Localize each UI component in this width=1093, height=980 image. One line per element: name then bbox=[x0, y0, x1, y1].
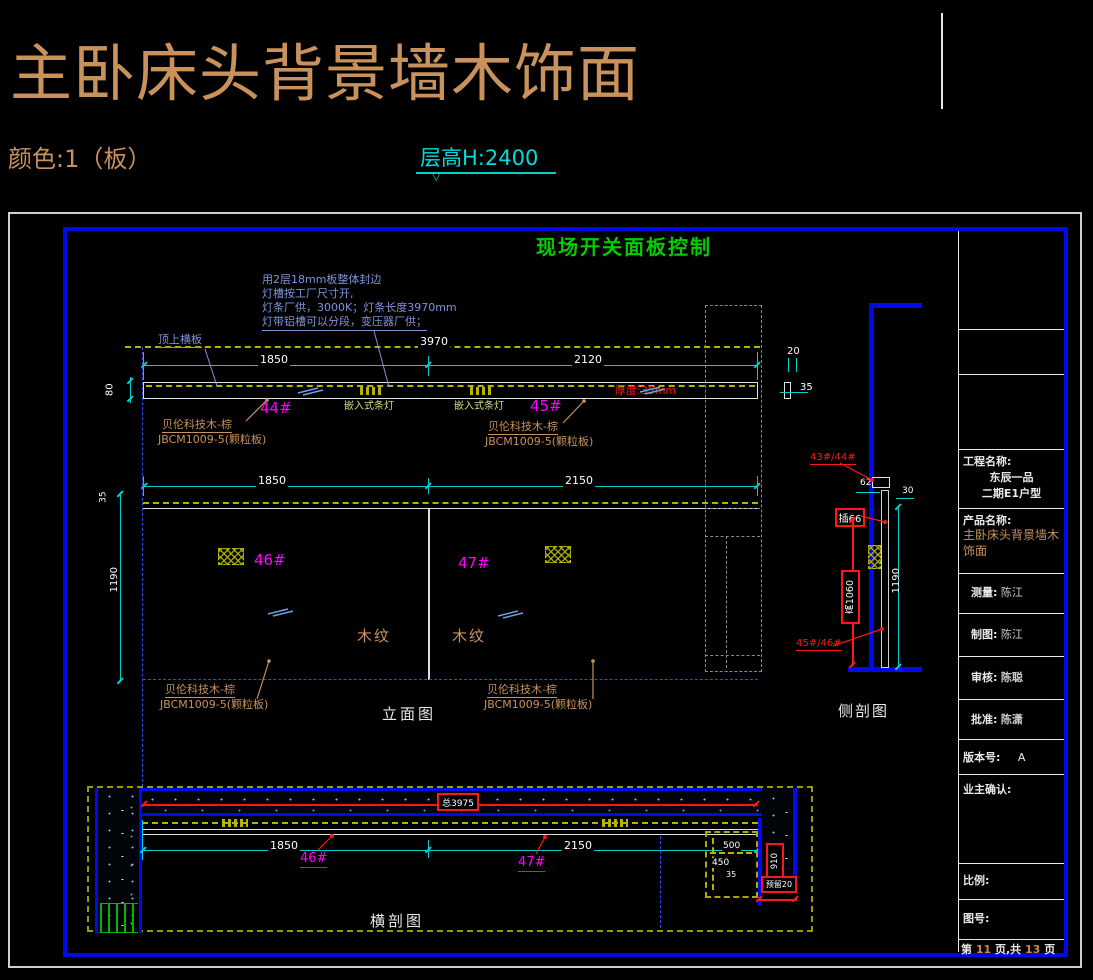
version-label: 版本号: bbox=[963, 751, 1000, 764]
panel-tag-44: 44# bbox=[260, 400, 292, 417]
review-label: 审核: bbox=[971, 671, 997, 684]
side-dim-30: 30 bbox=[902, 486, 913, 496]
dim-mid-right: 2150 bbox=[563, 475, 595, 488]
panel-tag-46: 46# bbox=[254, 552, 286, 569]
material-code: JBCM1009-5(颗粒板) bbox=[485, 436, 593, 449]
wall-left-dashed bbox=[142, 347, 143, 787]
gap-dim-vertical: 910 bbox=[766, 843, 784, 879]
material-code: JBCM1009-5(颗粒板) bbox=[160, 699, 268, 712]
panel-bottom-dashed bbox=[143, 679, 758, 680]
panel-divider bbox=[428, 508, 430, 680]
measure-row: 测量: 陈江 bbox=[959, 573, 1064, 613]
floor-height-note: 层高H:2400 bbox=[420, 146, 538, 170]
lamp-strip-icon bbox=[602, 819, 628, 827]
side-dim-62: 62 bbox=[860, 478, 871, 488]
dim-top-right: 2120 bbox=[572, 354, 604, 367]
control-note: 现场开关面板控制 bbox=[536, 236, 712, 259]
review-row: 审核: 陈聪 bbox=[959, 656, 1064, 699]
side-dim-1190-text: 1190 bbox=[891, 568, 903, 593]
side-section-label: 侧剖图 bbox=[838, 703, 889, 720]
cross-total-box: 总3975 bbox=[437, 793, 479, 811]
thickness-note: 厚度:35mm bbox=[615, 385, 676, 398]
side-ref-bottom: 45#/46# bbox=[796, 638, 842, 651]
side-socket-box: 插66 bbox=[835, 508, 865, 527]
cross-dim-left: 1850 bbox=[268, 840, 300, 853]
lamp-strip-icon bbox=[222, 819, 248, 827]
lamp-strip-icon bbox=[470, 387, 492, 395]
draft-label: 制图: bbox=[971, 628, 997, 641]
dim-line-top bbox=[143, 365, 758, 366]
material-code: JBCM1009-5(颗粒板) bbox=[158, 434, 266, 447]
version-value: A bbox=[1004, 751, 1026, 764]
socket-symbol bbox=[545, 546, 571, 563]
elevation-view-label: 立面图 bbox=[382, 706, 436, 723]
recessed-lamp-label: 嵌入式条灯 bbox=[344, 401, 394, 413]
cross-dashed-drop bbox=[660, 836, 661, 928]
top-right-line bbox=[941, 13, 943, 109]
dim-80: 80 bbox=[105, 383, 117, 396]
wardrobe-dashed-outline bbox=[705, 305, 762, 672]
cross-section-label: 横剖图 bbox=[370, 913, 424, 930]
scale-label: 比例: bbox=[963, 874, 989, 887]
side-ref-top: 43#/44# bbox=[810, 452, 856, 465]
cross-dim-line bbox=[142, 850, 758, 851]
review-value: 陈聪 bbox=[1001, 671, 1023, 684]
top-wall-concrete bbox=[95, 788, 762, 816]
wood-grain-label: 木纹 bbox=[357, 628, 391, 645]
side-panel bbox=[881, 490, 889, 668]
product-name-row: 产品名称: 主卧床头背景墙木饰面 bbox=[959, 508, 1064, 573]
dim-1190: 1190 bbox=[109, 567, 121, 592]
lamp-note-line-4: 灯带铝槽可以分段，变压器厂供； bbox=[262, 316, 427, 331]
material-brand: 贝伦科技木-棕 bbox=[162, 419, 232, 433]
panel-tag-47: 47# bbox=[458, 555, 490, 572]
cad-sheet: 主卧床头背景墙木饰面 颜色:1（板） 层高H:2400 ▽ 现场开关面板控制 用… bbox=[0, 0, 1093, 980]
project-name-row: 工程名称: 东辰一品 二期E1户型 bbox=[959, 449, 1064, 508]
approve-label: 批准: bbox=[971, 713, 997, 726]
draft-row: 制图: 陈江 bbox=[959, 613, 1064, 656]
project-name-line1: 东辰一品 bbox=[963, 469, 1060, 485]
side-top-cap bbox=[872, 477, 890, 488]
material-code: JBCM1009-5(颗粒板) bbox=[484, 699, 592, 712]
socket-symbol bbox=[868, 545, 881, 569]
project-name-line2: 二期E1户型 bbox=[963, 485, 1060, 501]
owner-confirm-label: 业主确认: bbox=[963, 783, 1011, 796]
dim-line-mid bbox=[143, 486, 758, 487]
owner-confirm-row: 业主确认: bbox=[959, 774, 1064, 863]
page-total: 13 bbox=[1025, 943, 1040, 956]
page-number-row: 第 11 页,共 13 页 bbox=[959, 939, 1064, 952]
lamp-strip-icon bbox=[360, 387, 382, 395]
lamp-note-line-2: 灯槽按工厂尺寸开, bbox=[262, 288, 354, 301]
panel-edge-detail bbox=[784, 382, 791, 399]
material-brand: 贝伦科技木-棕 bbox=[165, 684, 235, 698]
niche-dim-w: 500 bbox=[722, 841, 741, 851]
niche-dim-h: 450 bbox=[712, 858, 729, 868]
titleblock-empty-row bbox=[959, 231, 1064, 329]
color-note: 颜色:1（板） bbox=[8, 146, 151, 174]
scale-row: 比例: bbox=[959, 863, 1064, 899]
draft-value: 陈江 bbox=[1001, 628, 1023, 641]
titleblock: 工程名称: 东辰一品 二期E1户型 产品名称: 主卧床头背景墙木饰面 测量: 陈… bbox=[958, 231, 1064, 952]
dim-35: 35 bbox=[99, 491, 109, 502]
page-suffix: 页 bbox=[1044, 943, 1055, 956]
cross-dim-35: 35 bbox=[726, 870, 736, 879]
page-current: 11 bbox=[976, 943, 991, 956]
wood-grain-label: 木纹 bbox=[452, 628, 486, 645]
material-brand: 贝伦科技木-棕 bbox=[488, 421, 558, 435]
page-mid: 页,共 bbox=[995, 943, 1021, 956]
sheet-title: 主卧床头背景墙木饰面 bbox=[10, 38, 640, 109]
gap-dim-horizontal: 预留20 bbox=[761, 876, 797, 893]
lamp-note-line-1: 用2层18mm板整体封边 bbox=[262, 274, 381, 287]
cross-dim-right: 2150 bbox=[562, 840, 594, 853]
dim-3970: 3970 bbox=[418, 336, 450, 349]
socket-symbol bbox=[218, 548, 244, 565]
top-board-label: 顶上横板 bbox=[158, 334, 202, 348]
measure-label: 测量: bbox=[971, 586, 997, 599]
approve-row: 批准: 陈潇 bbox=[959, 699, 1064, 739]
measure-value: 陈江 bbox=[1001, 586, 1023, 599]
product-name-label: 产品名称: bbox=[963, 512, 1060, 528]
cross-tag-47: 47# bbox=[518, 856, 545, 872]
product-name-value: 主卧床头背景墙木饰面 bbox=[963, 528, 1060, 559]
material-brand: 贝伦科技木-棕 bbox=[487, 684, 557, 698]
down-triangle-icon: ▽ bbox=[432, 171, 440, 184]
figure-no-label: 图号: bbox=[963, 912, 989, 925]
panel-tag-45: 45# bbox=[530, 398, 562, 415]
dim-mid-left: 1850 bbox=[256, 475, 288, 488]
detail-dim-20: 20 bbox=[787, 346, 800, 358]
recessed-lamp-label: 嵌入式条灯 bbox=[454, 401, 504, 413]
titleblock-empty-row bbox=[959, 374, 1064, 449]
project-name-label: 工程名称: bbox=[963, 453, 1060, 469]
lamp-note-line-3: 灯条厂供，3000K；灯条长度3970mm bbox=[262, 302, 457, 315]
titleblock-empty-row bbox=[959, 329, 1064, 374]
version-row: 版本号: A bbox=[959, 739, 1064, 774]
figure-no-row: 图号: bbox=[959, 899, 1064, 939]
side-height-box: 高1060 bbox=[841, 570, 860, 624]
approve-value: 陈潇 bbox=[1001, 713, 1023, 726]
dim-top-left: 1850 bbox=[258, 354, 290, 367]
cross-tag-46: 46# bbox=[300, 852, 327, 868]
page-prefix: 第 bbox=[961, 943, 972, 956]
left-wall-green-hatch bbox=[100, 903, 138, 933]
